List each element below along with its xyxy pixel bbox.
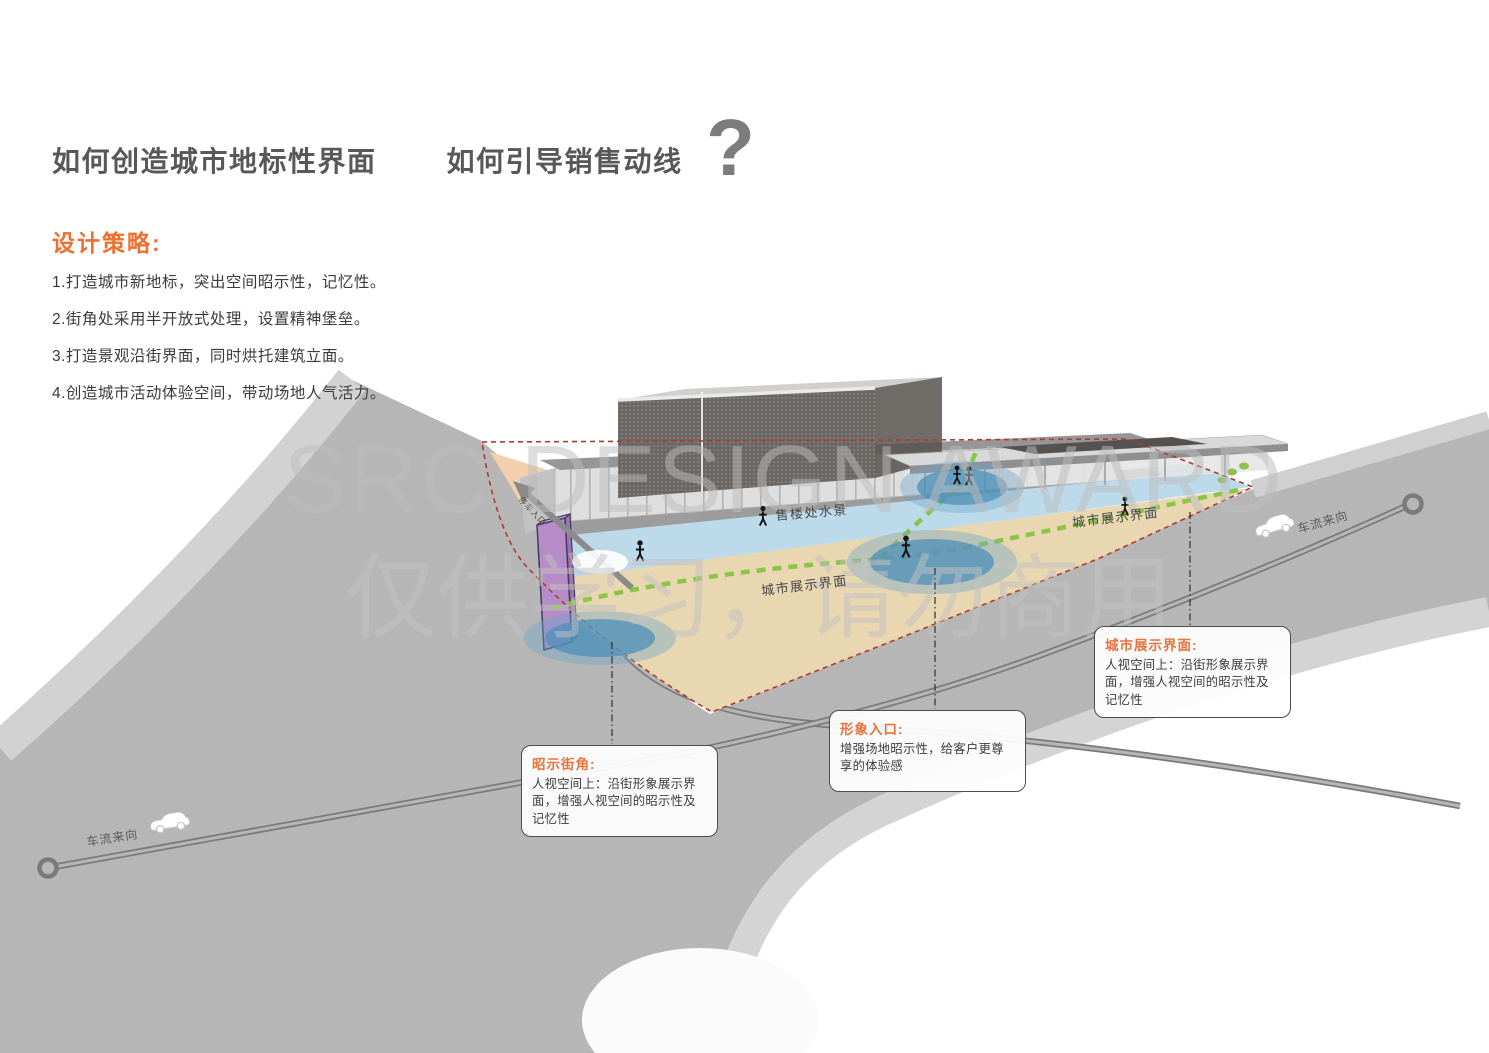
watermark-line2: 仅供学习，请勿商用	[345, 548, 1173, 650]
presentation-slide: 停车入口	[0, 0, 1489, 1053]
strategy-item-2: 2.街角处采用半开放式处理，设置精神堡垒。	[52, 309, 532, 331]
strategy-item-3: 3.打造景观沿街界面，同时烘托建筑立面。	[52, 346, 532, 368]
road-end-ring-left	[40, 860, 57, 877]
callout-body: 增强场地昭示性，给客户更尊享的体验感	[840, 741, 1015, 776]
title-left: 如何创造城市地标性界面	[52, 146, 377, 177]
callout-image-entrance: 形象入口: 增强场地昭示性，给客户更尊享的体验感	[829, 710, 1026, 792]
road-end-ring-right	[1405, 496, 1422, 513]
design-strategy-heading: 设计策略:	[52, 224, 532, 258]
callout-street-corner: 昭示街角: 人视空间上：沿街形象展示界面，增强人视空间的昭示性及记忆性	[521, 745, 718, 837]
callout-body: 人视空间上：沿街形象展示界面，增强人视空间的昭示性及记忆性	[1105, 657, 1280, 709]
callout-body: 人视空间上：沿街形象展示界面，增强人视空间的昭示性及记忆性	[532, 776, 707, 828]
callout-title: 形象入口:	[840, 718, 1015, 738]
question-mark: ?	[706, 108, 755, 188]
callout-title: 昭示街角:	[532, 753, 707, 773]
callout-title: 城市展示界面:	[1105, 634, 1280, 654]
title-right: 如何引导销售动线	[447, 146, 683, 177]
strategy-item-4: 4.创造城市活动体验空间，带动场地人气活力。	[52, 383, 532, 405]
page-title: 如何创造城市地标性界面如何引导销售动线	[52, 140, 683, 180]
design-strategy-section: 设计策略: 1.打造城市新地标，突出空间昭示性，记忆性。 2.街角处采用半开放式…	[52, 224, 532, 420]
callout-city-display-interface: 城市展示界面: 人视空间上：沿街形象展示界面，增强人视空间的昭示性及记忆性	[1094, 626, 1291, 718]
strategy-item-1: 1.打造城市新地标，突出空间昭示性，记忆性。	[52, 272, 532, 294]
